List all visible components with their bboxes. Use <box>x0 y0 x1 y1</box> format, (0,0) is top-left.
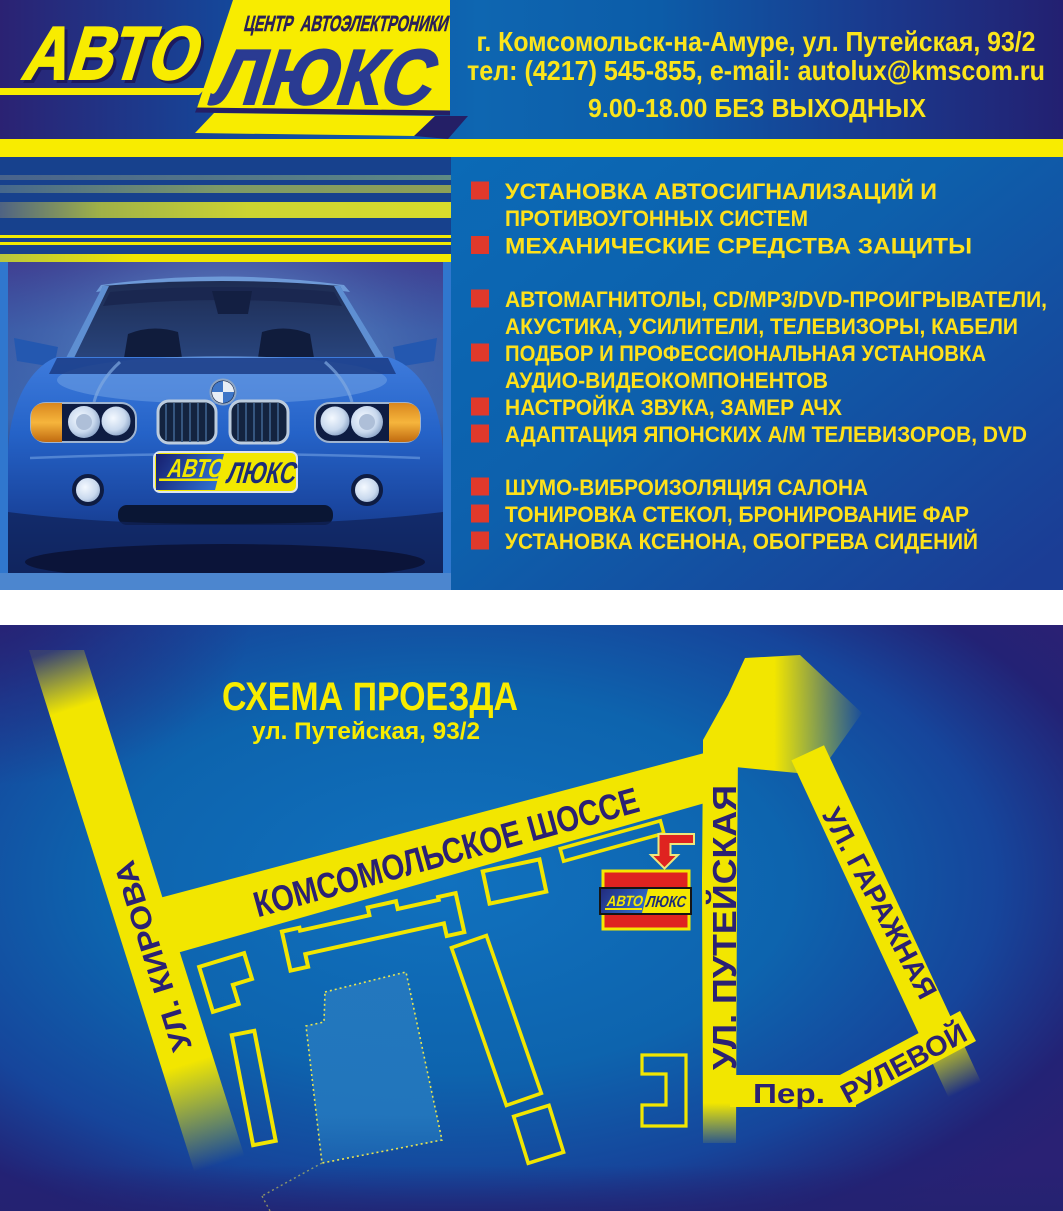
svg-text:АВТОМАГНИТОЛЫ, CD/MP3/DVD-ПРОИ: АВТОМАГНИТОЛЫ, CD/MP3/DVD-ПРОИГРЫВАТЕЛИ, <box>505 287 1047 312</box>
svg-text:ПРОТИВОУГОННЫХ СИСТЕМ: ПРОТИВОУГОННЫХ СИСТЕМ <box>505 206 808 231</box>
svg-text:ул. Путейская, 93/2: ул. Путейская, 93/2 <box>252 718 480 745</box>
svg-text:9.00-18.00 БЕЗ ВЫХОДНЫХ: 9.00-18.00 БЕЗ ВЫХОДНЫХ <box>588 93 927 123</box>
svg-text:СХЕМА ПРОЕЗДА: СХЕМА ПРОЕЗДА <box>222 675 518 719</box>
svg-text:АВТО: АВТО <box>164 453 228 482</box>
svg-text:ТОНИРОВКА СТЕКОЛ, БРОНИРОВАНИЕ: ТОНИРОВКА СТЕКОЛ, БРОНИРОВАНИЕ ФАР <box>505 502 969 527</box>
svg-text:АКУСТИКА, УСИЛИТЕЛИ, ТЕЛЕВИЗОР: АКУСТИКА, УСИЛИТЕЛИ, ТЕЛЕВИЗОРЫ, КАБЕЛИ <box>505 314 1018 339</box>
svg-text:г. Комсомольск-на-Амуре, ул. П: г. Комсомольск-на-Амуре, ул. Путейская, … <box>477 26 1036 57</box>
svg-text:АВТО: АВТО <box>15 13 213 96</box>
svg-text:ЛЮКС: ЛЮКС <box>223 457 302 490</box>
svg-text:ПОДБОР И ПРОФЕССИОНАЛЬНАЯ УСТА: ПОДБОР И ПРОФЕССИОНАЛЬНАЯ УСТАНОВКА <box>505 341 986 366</box>
svg-text:НАСТРОЙКА ЗВУКА, ЗАМЕР АЧХ: НАСТРОЙКА ЗВУКА, ЗАМЕР АЧХ <box>505 395 842 420</box>
svg-text:УСТАНОВКА КСЕНОНА, ОБОГРЕВА СИ: УСТАНОВКА КСЕНОНА, ОБОГРЕВА СИДЕНИЙ <box>505 529 978 554</box>
svg-text:ШУМО-ВИБРОИЗОЛЯЦИЯ САЛОНА: ШУМО-ВИБРОИЗОЛЯЦИЯ САЛОНА <box>505 475 868 500</box>
svg-text:ЛЮКС: ЛЮКС <box>644 893 689 911</box>
svg-text:АУДИО-ВИДЕОКОМПОНЕНТОВ: АУДИО-ВИДЕОКОМПОНЕНТОВ <box>505 368 828 393</box>
svg-text:АДАПТАЦИЯ ЯПОНСКИХ А/М ТЕЛЕВИЗ: АДАПТАЦИЯ ЯПОНСКИХ А/М ТЕЛЕВИЗОРОВ, DVD <box>505 422 1027 447</box>
svg-text:МЕХАНИЧЕСКИЕ СРЕДСТВА ЗАЩИТЫ: МЕХАНИЧЕСКИЕ СРЕДСТВА ЗАЩИТЫ <box>505 234 972 259</box>
svg-text:ЛЮКС: ЛЮКС <box>203 34 450 121</box>
svg-text:тел: (4217) 545-855, e-mail: a: тел: (4217) 545-855, e-mail: autolux@kms… <box>467 55 1045 86</box>
svg-text:ЦЕНТР АВТОЭЛЕКТРОНИКИ: ЦЕНТР АВТОЭЛЕКТРОНИКИ <box>242 11 452 36</box>
svg-text:АВТО: АВТО <box>605 893 645 910</box>
svg-text:УЛ. ПУТЕЙСКАЯ: УЛ. ПУТЕЙСКАЯ <box>705 785 743 1070</box>
svg-text:Пер.: Пер. <box>753 1078 825 1109</box>
svg-text:УСТАНОВКА АВТОСИГНАЛИЗАЦИЙ И: УСТАНОВКА АВТОСИГНАЛИЗАЦИЙ И <box>505 179 937 204</box>
